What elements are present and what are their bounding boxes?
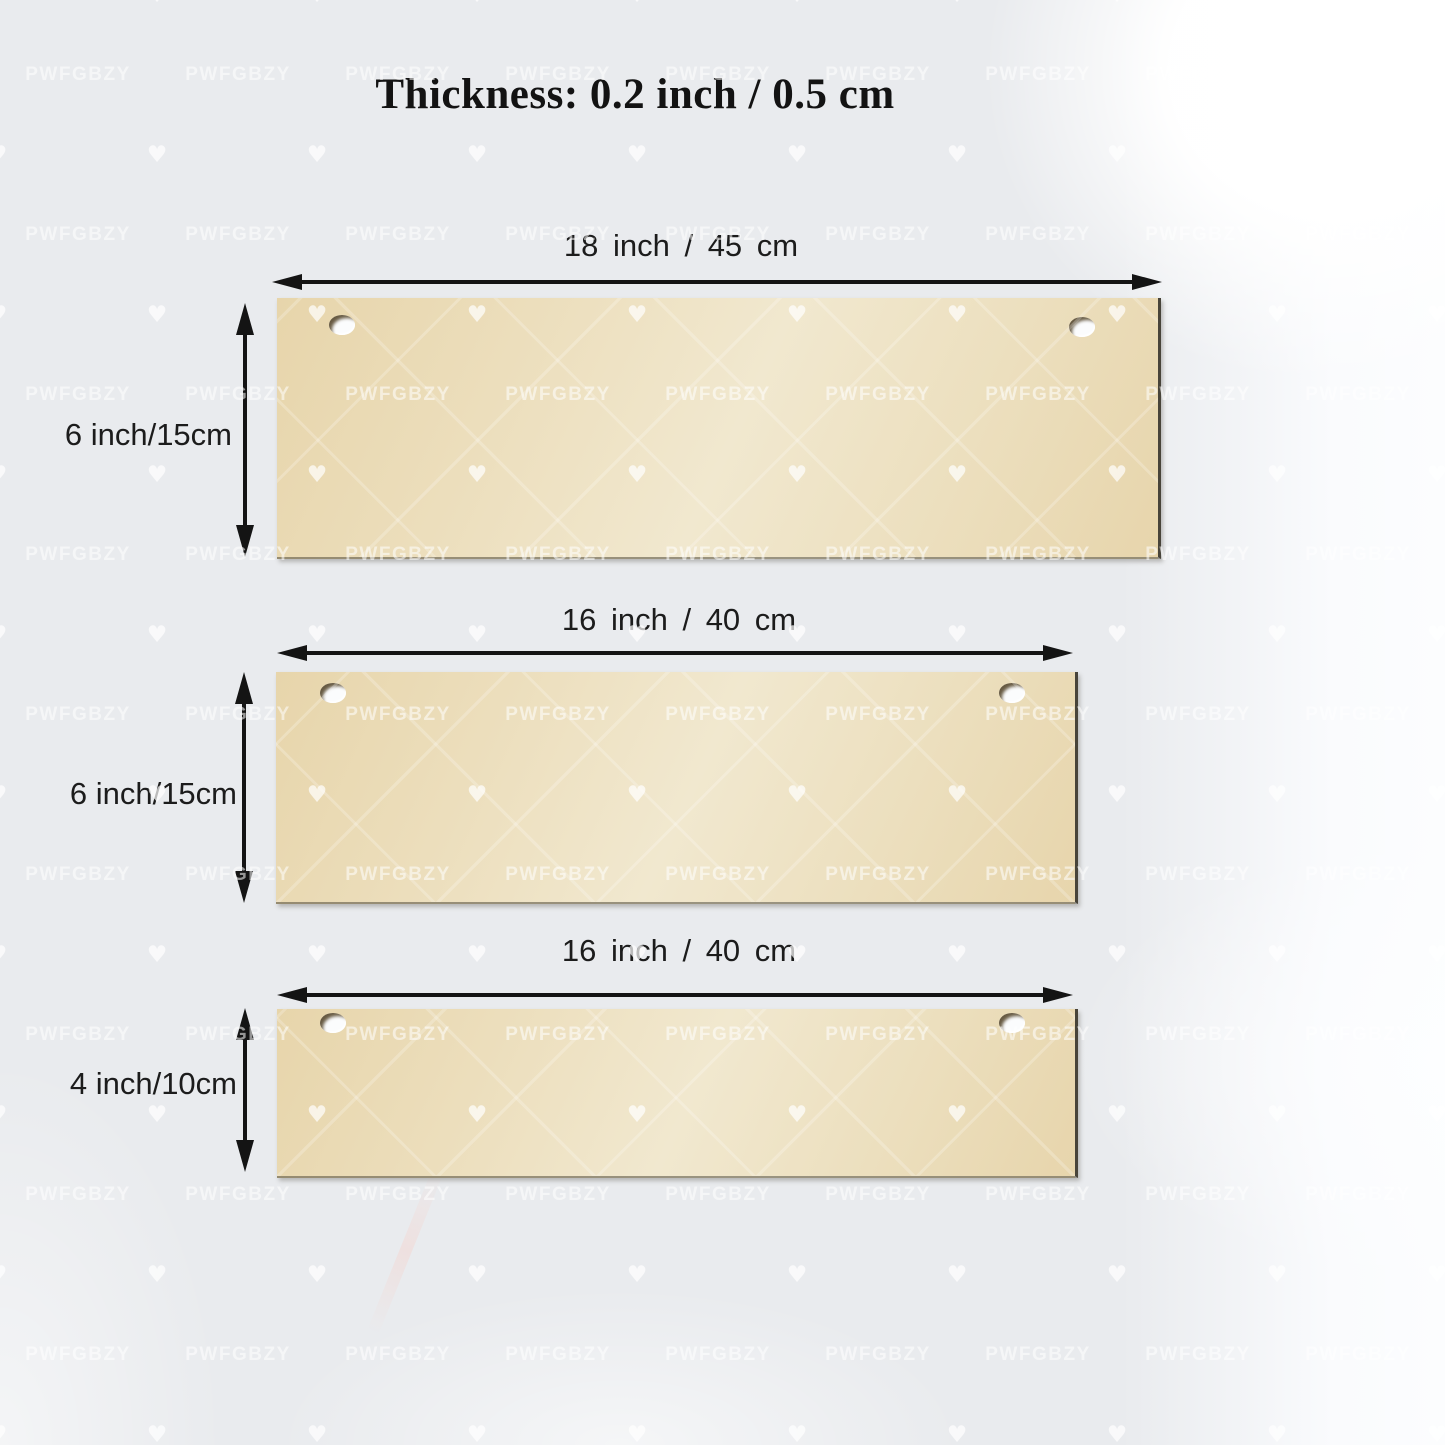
heart-watermark-icon: ♥ bbox=[307, 1422, 328, 1445]
arrow-right-head-icon bbox=[1043, 645, 1073, 661]
heart-watermark-icon: ♥ bbox=[1427, 942, 1445, 968]
brand-watermark-text: PWFGBZY bbox=[25, 1344, 131, 1366]
heart-watermark-icon: ♥ bbox=[947, 0, 968, 8]
heart-watermark-icon: ♥ bbox=[467, 142, 488, 168]
heart-watermark-icon: ♥ bbox=[147, 302, 168, 328]
heart-watermark-icon: ♥ bbox=[147, 142, 168, 168]
brand-watermark-text: PWFGBZY bbox=[825, 224, 931, 246]
heart-watermark-icon: ♥ bbox=[467, 0, 488, 8]
heart-watermark-icon: ♥ bbox=[1427, 782, 1445, 808]
brand-watermark-text: PWFGBZY bbox=[345, 1344, 451, 1366]
product-dimension-diagram: Thickness: 0.2 inch / 0.5 cm 18 inch / 4… bbox=[0, 0, 1445, 1445]
plaque1-width-label: 18 inch / 45 cm bbox=[564, 228, 798, 264]
brand-watermark-text: PWFGBZY bbox=[1305, 704, 1411, 726]
heart-watermark-icon: ♥ bbox=[627, 0, 648, 8]
plaque2-width-label: 16 inch / 40 cm bbox=[562, 602, 796, 638]
heart-watermark-icon: ♥ bbox=[787, 0, 808, 8]
brand-watermark-text: PWFGBZY bbox=[1145, 1344, 1251, 1366]
brand-watermark-text: PWFGBZY bbox=[1305, 64, 1411, 86]
heart-watermark-icon: ♥ bbox=[147, 1262, 168, 1288]
brand-watermark-text: PWFGBZY bbox=[185, 64, 291, 86]
heart-watermark-icon: ♥ bbox=[1107, 1422, 1128, 1445]
heart-watermark-icon: ♥ bbox=[1107, 1262, 1128, 1288]
heart-watermark-icon: ♥ bbox=[0, 142, 7, 168]
heart-watermark-icon: ♥ bbox=[0, 462, 7, 488]
plaque1-height-label: 6 inch/15cm bbox=[65, 417, 232, 453]
brand-watermark-text: PWFGBZY bbox=[25, 1024, 131, 1046]
plaque3-width-label: 16 inch / 40 cm bbox=[562, 933, 796, 969]
brand-watermark-text: PWFGBZY bbox=[1145, 384, 1251, 406]
heart-watermark-icon: ♥ bbox=[307, 1262, 328, 1288]
heart-watermark-icon: ♥ bbox=[1267, 142, 1288, 168]
wood-plaque-16x4 bbox=[277, 1009, 1078, 1178]
heart-watermark-icon: ♥ bbox=[947, 1262, 968, 1288]
heart-watermark-icon: ♥ bbox=[787, 1262, 808, 1288]
brand-watermark-text: PWFGBZY bbox=[1305, 544, 1411, 566]
brand-watermark-text: PWFGBZY bbox=[1145, 704, 1251, 726]
heart-watermark-icon: ♥ bbox=[627, 1422, 648, 1445]
heart-watermark-icon: ♥ bbox=[147, 1422, 168, 1445]
heart-watermark-icon: ♥ bbox=[0, 1262, 7, 1288]
heart-watermark-icon: ♥ bbox=[627, 1262, 648, 1288]
heart-watermark-icon: ♥ bbox=[307, 142, 328, 168]
plaque3-height-label: 4 inch/10cm bbox=[70, 1066, 237, 1102]
heart-watermark-icon: ♥ bbox=[0, 1102, 7, 1128]
brand-watermark-text: PWFGBZY bbox=[345, 224, 451, 246]
heart-watermark-icon: ♥ bbox=[1107, 622, 1128, 648]
wood-plaque-18x6 bbox=[277, 298, 1161, 559]
brand-watermark-text: PWFGBZY bbox=[25, 224, 131, 246]
brand-watermark-text: PWFGBZY bbox=[985, 1184, 1091, 1206]
heart-watermark-icon: ♥ bbox=[1267, 1102, 1288, 1128]
brand-watermark-text: PWFGBZY bbox=[1305, 1344, 1411, 1366]
brand-watermark-text: PWFGBZY bbox=[25, 704, 131, 726]
heart-watermark-icon: ♥ bbox=[1107, 1102, 1128, 1128]
arrow-shaft bbox=[302, 993, 1048, 997]
heart-watermark-icon: ♥ bbox=[307, 942, 328, 968]
brand-watermark-text: PWFGBZY bbox=[985, 1344, 1091, 1366]
heart-watermark-icon: ♥ bbox=[1107, 0, 1128, 8]
heart-watermark-icon: ♥ bbox=[1427, 462, 1445, 488]
plaque2-width-arrow-icon bbox=[277, 641, 1073, 665]
hanging-hole bbox=[320, 1013, 346, 1033]
arrow-shaft bbox=[302, 651, 1048, 655]
heart-watermark-icon: ♥ bbox=[147, 0, 168, 8]
heart-watermark-icon: ♥ bbox=[787, 1422, 808, 1445]
heart-watermark-icon: ♥ bbox=[467, 942, 488, 968]
heart-watermark-icon: ♥ bbox=[1427, 622, 1445, 648]
heart-watermark-icon: ♥ bbox=[147, 622, 168, 648]
hanging-hole bbox=[329, 315, 355, 335]
heart-watermark-icon: ♥ bbox=[1267, 0, 1288, 8]
heart-watermark-icon: ♥ bbox=[1427, 1422, 1445, 1445]
brand-watermark-text: PWFGBZY bbox=[185, 1344, 291, 1366]
arrow-shaft bbox=[297, 280, 1137, 284]
heart-watermark-icon: ♥ bbox=[1267, 942, 1288, 968]
heart-watermark-icon: ♥ bbox=[147, 942, 168, 968]
wood-plaque-16x6 bbox=[276, 672, 1078, 904]
heart-watermark-icon: ♥ bbox=[147, 462, 168, 488]
page-title: Thickness: 0.2 inch / 0.5 cm bbox=[375, 70, 894, 119]
brand-watermark-text: PWFGBZY bbox=[985, 224, 1091, 246]
hanging-hole bbox=[1069, 317, 1095, 337]
hanging-hole bbox=[320, 683, 346, 703]
heart-watermark-icon: ♥ bbox=[1427, 1262, 1445, 1288]
brand-watermark-text: PWFGBZY bbox=[1305, 224, 1411, 246]
heart-watermark-icon: ♥ bbox=[1427, 0, 1445, 8]
brand-watermark-text: PWFGBZY bbox=[665, 1344, 771, 1366]
arrow-right-head-icon bbox=[1132, 274, 1162, 290]
arrow-right-head-icon bbox=[1043, 987, 1073, 1003]
plaque1-width-arrow-icon bbox=[272, 270, 1162, 294]
heart-watermark-icon: ♥ bbox=[147, 1102, 168, 1128]
plaque2-height-label: 6 inch/15cm bbox=[70, 776, 237, 812]
brand-watermark-text: PWFGBZY bbox=[1305, 384, 1411, 406]
heart-watermark-icon: ♥ bbox=[0, 1422, 7, 1445]
heart-watermark-icon: ♥ bbox=[1107, 942, 1128, 968]
brand-watermark-text: PWFGBZY bbox=[1145, 864, 1251, 886]
heart-watermark-icon: ♥ bbox=[0, 0, 7, 8]
heart-watermark-icon: ♥ bbox=[627, 142, 648, 168]
arrow-down-head-icon bbox=[236, 1140, 254, 1172]
brand-watermark-text: PWFGBZY bbox=[505, 1184, 611, 1206]
brand-watermark-text: PWFGBZY bbox=[25, 384, 131, 406]
heart-watermark-icon: ♥ bbox=[1427, 1102, 1445, 1128]
heart-watermark-icon: ♥ bbox=[1267, 462, 1288, 488]
brand-watermark-text: PWFGBZY bbox=[1145, 224, 1251, 246]
brand-watermark-text: PWFGBZY bbox=[1145, 1184, 1251, 1206]
arrow-shaft bbox=[243, 330, 247, 530]
background-crease bbox=[367, 1164, 446, 1335]
heart-watermark-icon: ♥ bbox=[1107, 142, 1128, 168]
brand-watermark-text: PWFGBZY bbox=[25, 1184, 131, 1206]
brand-watermark-text: PWFGBZY bbox=[1305, 1024, 1411, 1046]
heart-watermark-icon: ♥ bbox=[0, 302, 7, 328]
heart-watermark-icon: ♥ bbox=[787, 142, 808, 168]
heart-watermark-icon: ♥ bbox=[0, 942, 7, 968]
plaque3-width-arrow-icon bbox=[277, 983, 1073, 1007]
heart-watermark-icon: ♥ bbox=[1427, 302, 1445, 328]
brand-watermark-text: PWFGBZY bbox=[1145, 544, 1251, 566]
heart-watermark-icon: ♥ bbox=[0, 622, 7, 648]
brand-watermark-text: PWFGBZY bbox=[665, 1184, 771, 1206]
brand-watermark-text: PWFGBZY bbox=[185, 1184, 291, 1206]
heart-watermark-icon: ♥ bbox=[947, 942, 968, 968]
heart-watermark-icon: ♥ bbox=[307, 0, 328, 8]
brand-watermark-text: PWFGBZY bbox=[505, 1344, 611, 1366]
brand-watermark-text: PWFGBZY bbox=[1305, 864, 1411, 886]
brand-watermark-text: PWFGBZY bbox=[985, 64, 1091, 86]
hanging-hole bbox=[999, 683, 1025, 703]
brand-watermark-text: PWFGBZY bbox=[25, 64, 131, 86]
arrow-down-head-icon bbox=[235, 871, 253, 903]
heart-watermark-icon: ♥ bbox=[1107, 782, 1128, 808]
heart-watermark-icon: ♥ bbox=[947, 1422, 968, 1445]
heart-watermark-icon: ♥ bbox=[1267, 1422, 1288, 1445]
brand-watermark-text: PWFGBZY bbox=[25, 864, 131, 886]
heart-watermark-icon: ♥ bbox=[467, 1422, 488, 1445]
heart-watermark-icon: ♥ bbox=[1267, 302, 1288, 328]
heart-watermark-icon: ♥ bbox=[1267, 622, 1288, 648]
brand-watermark-text: PWFGBZY bbox=[185, 224, 291, 246]
arrow-down-head-icon bbox=[236, 525, 254, 557]
hanging-hole bbox=[999, 1013, 1025, 1033]
brand-watermark-text: PWFGBZY bbox=[1145, 1024, 1251, 1046]
heart-watermark-icon: ♥ bbox=[947, 142, 968, 168]
heart-watermark-icon: ♥ bbox=[0, 782, 7, 808]
brand-watermark-text: PWFGBZY bbox=[25, 544, 131, 566]
brand-watermark-text: PWFGBZY bbox=[825, 1184, 931, 1206]
arrow-shaft bbox=[242, 699, 246, 876]
brand-watermark-text: PWFGBZY bbox=[1305, 1184, 1411, 1206]
brand-watermark-text: PWFGBZY bbox=[825, 1344, 931, 1366]
heart-watermark-icon: ♥ bbox=[1267, 1262, 1288, 1288]
heart-watermark-icon: ♥ bbox=[1427, 142, 1445, 168]
heart-watermark-icon: ♥ bbox=[467, 1262, 488, 1288]
plaque1-height-arrow-icon bbox=[233, 303, 257, 557]
heart-watermark-icon: ♥ bbox=[1267, 782, 1288, 808]
arrow-shaft bbox=[243, 1035, 247, 1145]
brand-watermark-text: PWFGBZY bbox=[1145, 64, 1251, 86]
